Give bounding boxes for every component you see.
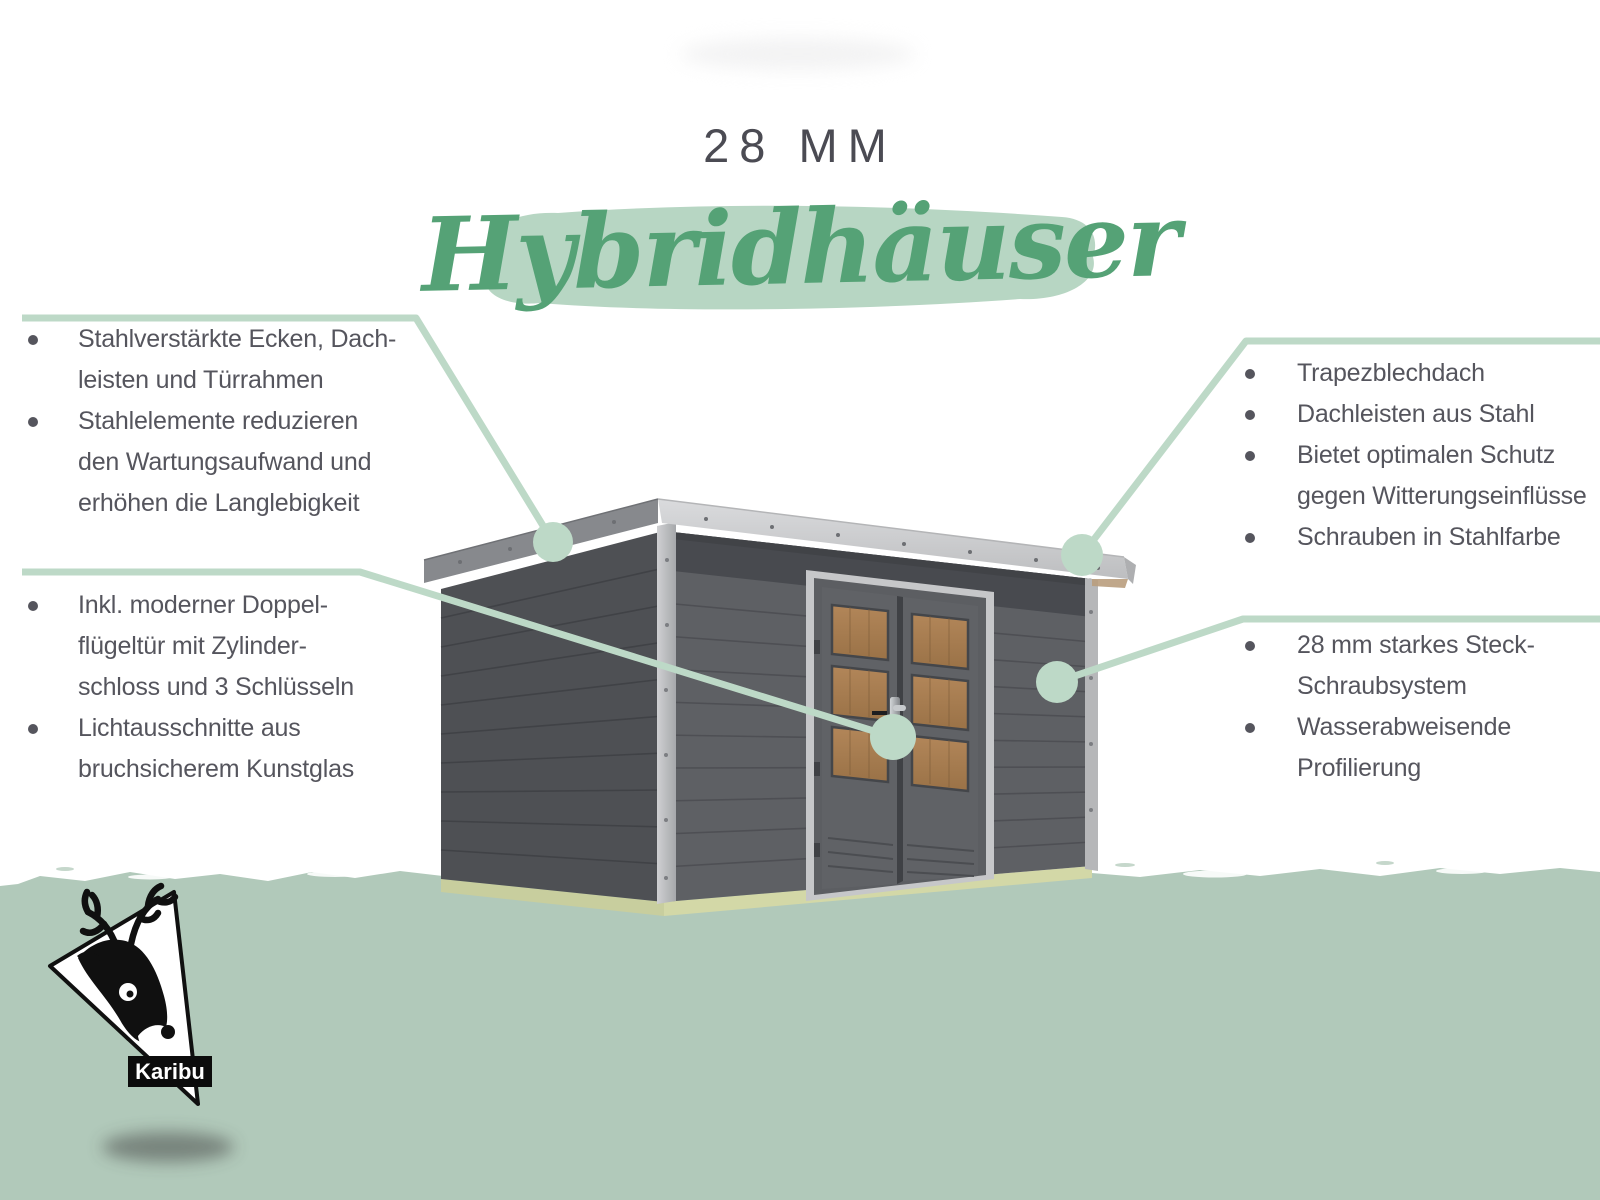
callout-text-line: bruchsicherem Kunstglas xyxy=(78,749,354,790)
callout-text-line: schloss und 3 Schlüsseln xyxy=(78,667,354,708)
callout-wall-system: 28 mm starkes Steck- Schraubsystem Wasse… xyxy=(1243,625,1535,789)
bullet-dot xyxy=(28,724,38,734)
callout-text-line: Wasserabweisende xyxy=(1297,707,1511,748)
callout-text-line: Stahlverstärkte Ecken, Dach- xyxy=(78,319,396,360)
bullet-dot xyxy=(1245,533,1255,543)
callout-text-line: Stahlelemente reduzieren xyxy=(78,401,371,442)
list-item: Lichtausschnitte aus bruchsicherem Kunst… xyxy=(24,708,354,790)
callout-text-line: Profilierung xyxy=(1297,748,1511,789)
bullet-dot xyxy=(1245,723,1255,733)
callout-text-line: Lichtausschnitte aus xyxy=(78,708,354,749)
list-item: Schrauben in Stahlfarbe xyxy=(1243,517,1587,558)
bullet-dot xyxy=(28,335,38,345)
list-item: Stahlverstärkte Ecken, Dach- leisten und… xyxy=(24,319,396,401)
callout-text-line: Dachleisten aus Stahl xyxy=(1297,394,1535,435)
callout-text-line: Schrauben in Stahlfarbe xyxy=(1297,517,1561,558)
bullet-dot xyxy=(28,417,38,427)
list-item: Bietet optimalen Schutz gegen Witterungs… xyxy=(1243,435,1587,517)
callout-text-line: leisten und Türrahmen xyxy=(78,360,396,401)
list-item: Trapezblechdach xyxy=(1243,353,1587,394)
bullet-dot xyxy=(1245,410,1255,420)
callout-text-line: Trapezblechdach xyxy=(1297,353,1485,394)
callout-dot-roof-left xyxy=(533,522,573,562)
list-item: Dachleisten aus Stahl xyxy=(1243,394,1587,435)
bullet-dot xyxy=(1245,369,1255,379)
callout-text-line: den Wartungsaufwand und xyxy=(78,442,371,483)
bullet-dot xyxy=(1245,451,1255,461)
callout-steel-elements: Stahlverstärkte Ecken, Dach- leisten und… xyxy=(24,319,396,524)
bullet-dot xyxy=(28,601,38,611)
callout-text-line: flügeltür mit Zylinder- xyxy=(78,626,354,667)
garden-shed-illustration xyxy=(424,499,1136,916)
callout-text-line: Schraubsystem xyxy=(1297,666,1535,707)
callout-text-line: erhöhen die Langlebigkeit xyxy=(78,483,371,524)
callout-text-line: Bietet optimalen Schutz xyxy=(1297,435,1587,476)
shed-left-wall xyxy=(441,531,664,902)
list-item: 28 mm starkes Steck- Schraubsystem xyxy=(1243,625,1535,707)
callout-roof-features: Trapezblechdach Dachleisten aus Stahl Bi… xyxy=(1243,353,1587,558)
title-thickness: 28 MM xyxy=(0,118,1600,173)
callout-text-line: Inkl. moderner Doppel- xyxy=(78,585,354,626)
logo-brand-text: Karibu xyxy=(135,1059,205,1084)
ground xyxy=(0,861,1600,1200)
callout-dot-wall xyxy=(1036,661,1078,703)
callout-dot-door-handle xyxy=(870,714,916,760)
callout-text-line: gegen Witterungseinflüsse xyxy=(1297,476,1587,517)
callout-text-line: 28 mm starkes Steck- xyxy=(1297,625,1535,666)
callout-dot-roof-right xyxy=(1061,534,1103,576)
list-item: Stahlelemente reduzieren den Wartungsauf… xyxy=(24,401,396,524)
logo-ground-shadow xyxy=(102,1132,234,1162)
bullet-dot xyxy=(1245,641,1255,651)
list-item: Inkl. moderner Doppel- flügeltür mit Zyl… xyxy=(24,585,354,708)
list-item: Wasserabweisende Profilierung xyxy=(1243,707,1535,789)
callout-door-features: Inkl. moderner Doppel- flügeltür mit Zyl… xyxy=(24,585,354,790)
infographic-28mm-hybridhaeuser: Karibu 28 MM Hybridhäuser Stahlverstärkt… xyxy=(0,0,1600,1200)
